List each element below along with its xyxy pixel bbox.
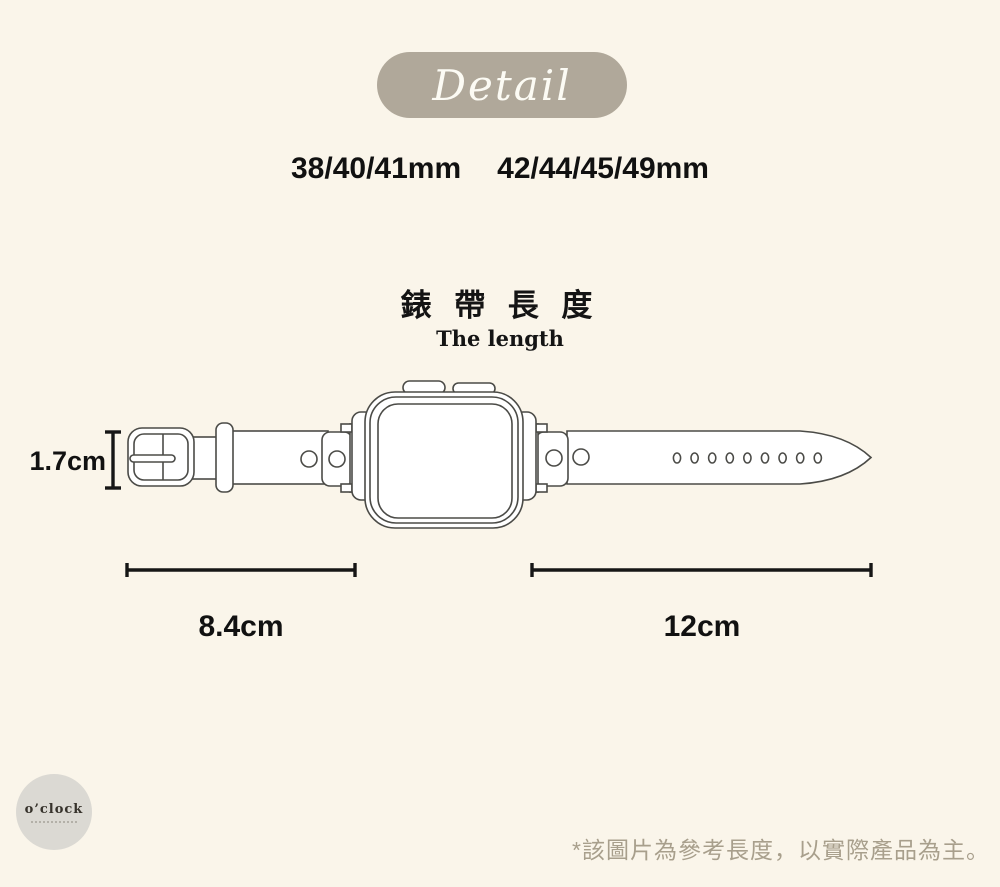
section-title: 錶 帶 長 度 [0, 280, 1000, 325]
size-large-label: 42/44/45/49mm [497, 152, 709, 186]
buckle-prong [130, 455, 175, 462]
section-subtitle: The length [0, 326, 1000, 351]
watch-screen [378, 404, 512, 518]
rivet [301, 451, 317, 467]
rivet [329, 451, 345, 467]
rivet [546, 450, 562, 466]
size-small-label: 38/40/41mm [291, 152, 461, 186]
strap-holes [673, 453, 821, 463]
strap-right-band [567, 431, 871, 484]
buckle-side-length-label: 8.4cm [161, 610, 321, 644]
size-variants: 38/40/41mm 42/44/45/49mm [0, 152, 1000, 186]
brand-logo: o’clock [16, 774, 92, 850]
brand-logo-tagline [31, 821, 77, 823]
rivet [573, 449, 589, 465]
product-detail-page: Detail 38/40/41mm 42/44/45/49mm 錶 帶 長 度 … [0, 0, 1000, 887]
detail-badge-label: Detail [432, 61, 571, 110]
detail-badge: Detail [377, 52, 627, 118]
brand-logo-name: o’clock [25, 802, 84, 817]
footnote: *該圖片為參考長度，以實際產品為主。 [572, 831, 990, 865]
hole-side-length-label: 12cm [622, 610, 782, 644]
watch-band-diagram [0, 370, 1000, 600]
strap-width-label: 1.7cm [18, 446, 106, 476]
keeper-loop [216, 423, 233, 492]
